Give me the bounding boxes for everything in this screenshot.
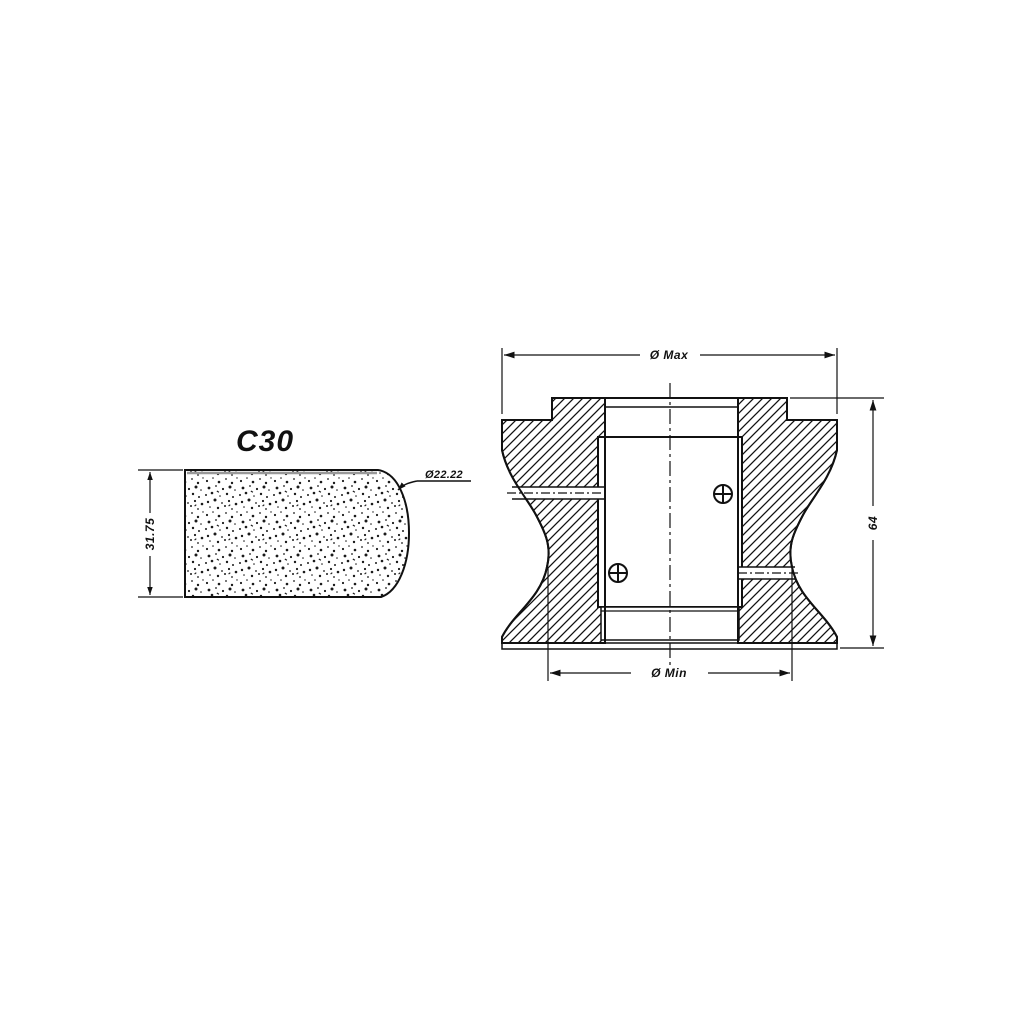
wheel-left-section	[502, 398, 605, 643]
drawing-canvas: C30 31.75 Ø22.22	[0, 0, 1024, 1024]
profile-view: C30 31.75 Ø22.22	[138, 425, 471, 597]
height-dimension-label: 64	[866, 516, 880, 530]
screw-hole-icon	[714, 485, 732, 503]
technical-drawing: C30 31.75 Ø22.22	[0, 0, 1024, 1024]
profile-title: C30	[236, 425, 294, 458]
radius-callout-label: Ø22.22	[425, 469, 463, 481]
diameter-max-label: Ø Max	[650, 348, 689, 362]
profile-shape	[185, 470, 409, 597]
section-view: Ø Max Ø Min 64	[502, 348, 884, 681]
wheel-right-section	[738, 398, 837, 643]
screw-hole-icon	[609, 564, 627, 582]
thickness-dimension-label: 31.75	[143, 518, 157, 551]
diameter-min-label: Ø Min	[651, 666, 687, 680]
radius-callout: Ø22.22	[398, 469, 471, 490]
